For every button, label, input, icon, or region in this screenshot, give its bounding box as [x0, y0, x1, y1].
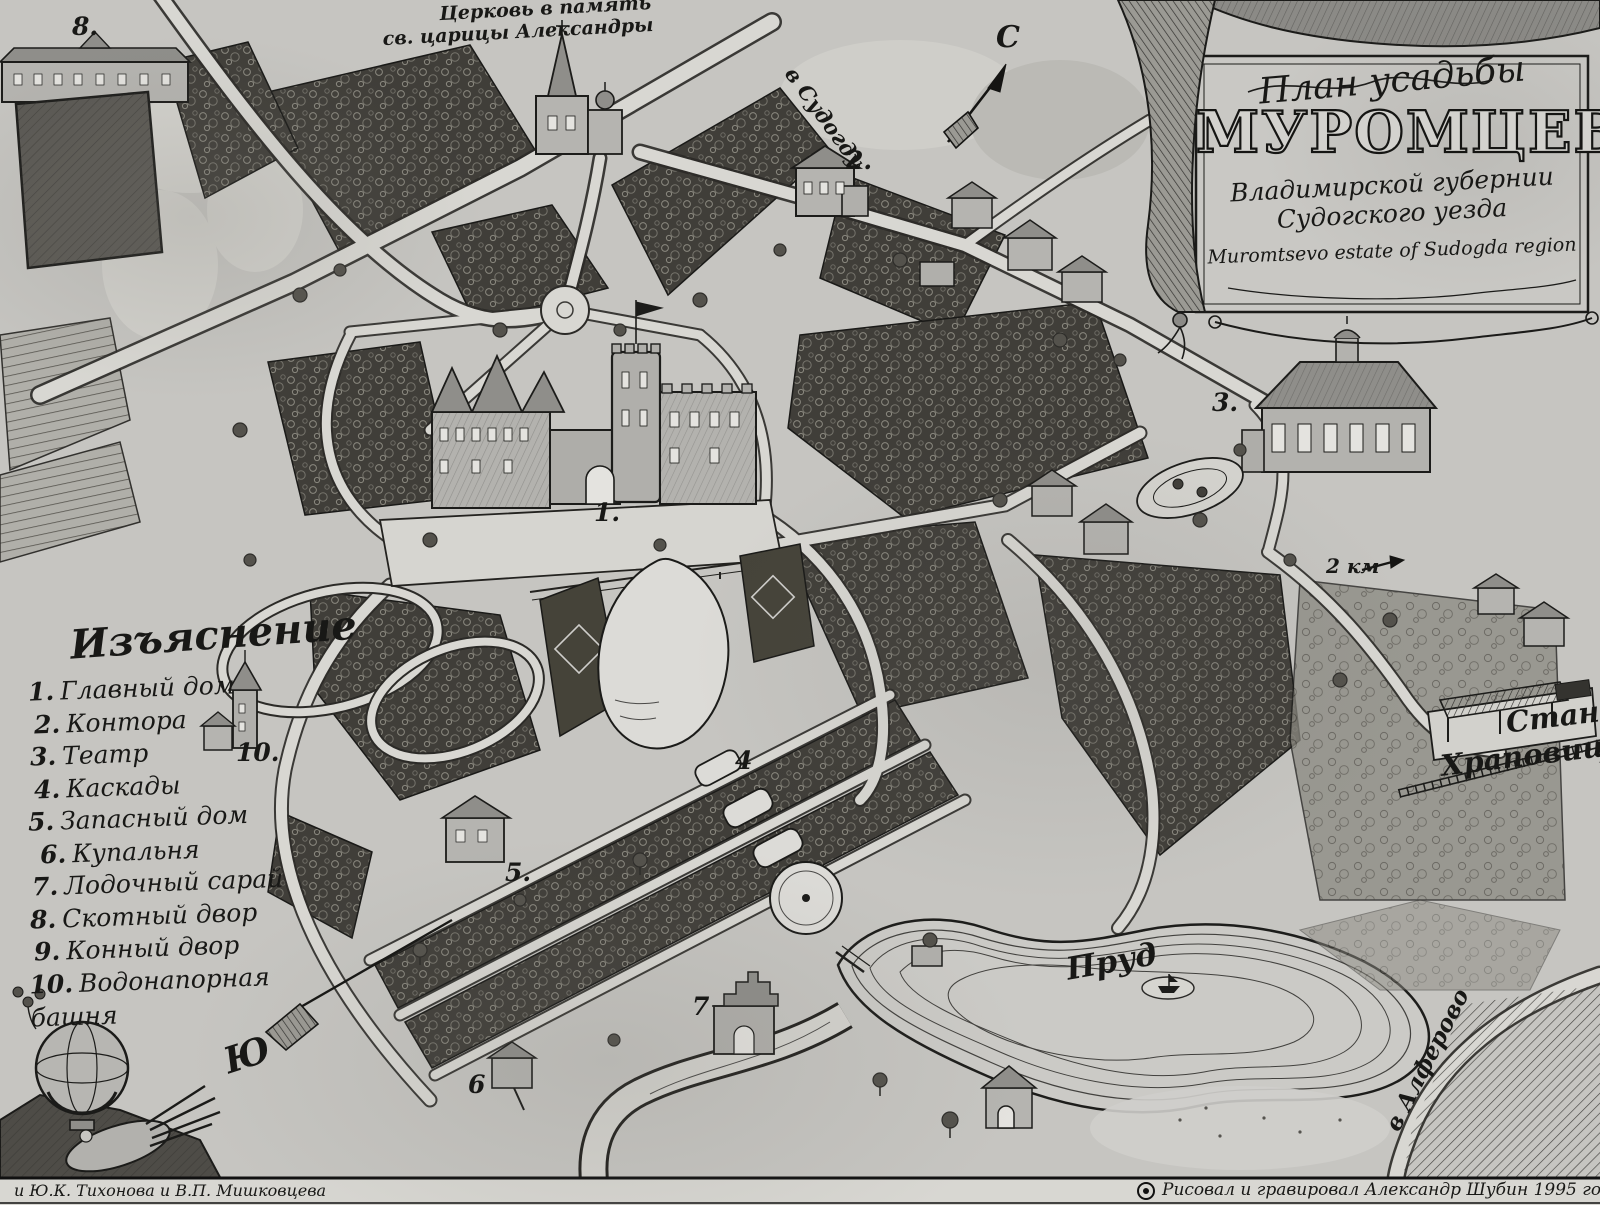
legend-heading: Изъяснение [69, 602, 350, 668]
legend-item-label: Конный двор [66, 930, 240, 965]
legend-item-number: 3. [30, 742, 57, 772]
legend-item-label: Запасный дом [60, 800, 249, 836]
marker-cascades: 4 [735, 746, 752, 775]
credit-photographers: и Ю.К. Тихонова и В.П. Мишковцева [14, 1181, 326, 1200]
marker-bathhouse: 6 [468, 1070, 485, 1099]
map-legend: Изъяснение 1.Главный дом 2.Контора 3.Теа… [28, 612, 348, 1029]
legend-item-number: 6. [40, 839, 67, 869]
legend-item-label: Каскады [66, 770, 181, 803]
credit-engraver: Рисовал и гравировал Александр Шубин 199… [1162, 1180, 1600, 1200]
scale-label: 2 км [1326, 554, 1379, 578]
legend-item-number: 5. [28, 807, 55, 837]
legend-item-number: 10. [29, 969, 73, 1000]
legend-item-label: Театр [62, 738, 149, 770]
legend-item-number: 2. [34, 709, 61, 739]
legend-item-number: 4. [34, 774, 61, 804]
legend-item-label: Скотный двор [62, 897, 258, 933]
legend-items: 1.Главный дом 2.Контора 3.Театр 4.Каскад… [28, 671, 348, 1029]
marker-theatre: 3. [1212, 388, 1238, 417]
compass-north-letter: С [996, 20, 1020, 55]
marker-office: 2. [846, 146, 872, 175]
title-cartouche: План усадьбы МУРОМЦЕВО Владимирской губе… [1196, 60, 1588, 262]
marker-reserve-house: 5. [505, 858, 531, 887]
legend-item-number: 7. [32, 872, 59, 902]
legend-item-label: Контора [66, 705, 187, 738]
marker-main-house: 1. [594, 498, 620, 527]
legend-item: 10.Водонапорная башня [29, 958, 349, 1034]
legend-item-number: 1. [28, 677, 55, 707]
marker-cattle-yard: 8. [72, 12, 98, 41]
legend-item-number: 9. [34, 937, 61, 967]
legend-item-label: Купальня [72, 834, 200, 867]
marker-boat-shed: 7 [692, 992, 709, 1021]
marker-water-tower: 10. [236, 738, 280, 767]
engraved-estate-map: План усадьбы МУРОМЦЕВО Владимирской губе… [0, 0, 1600, 1205]
legend-item-number: 8. [30, 904, 57, 934]
legend-item-label: Главный дом [60, 670, 235, 705]
legend-item-label: Лодочный сарай [64, 864, 284, 901]
